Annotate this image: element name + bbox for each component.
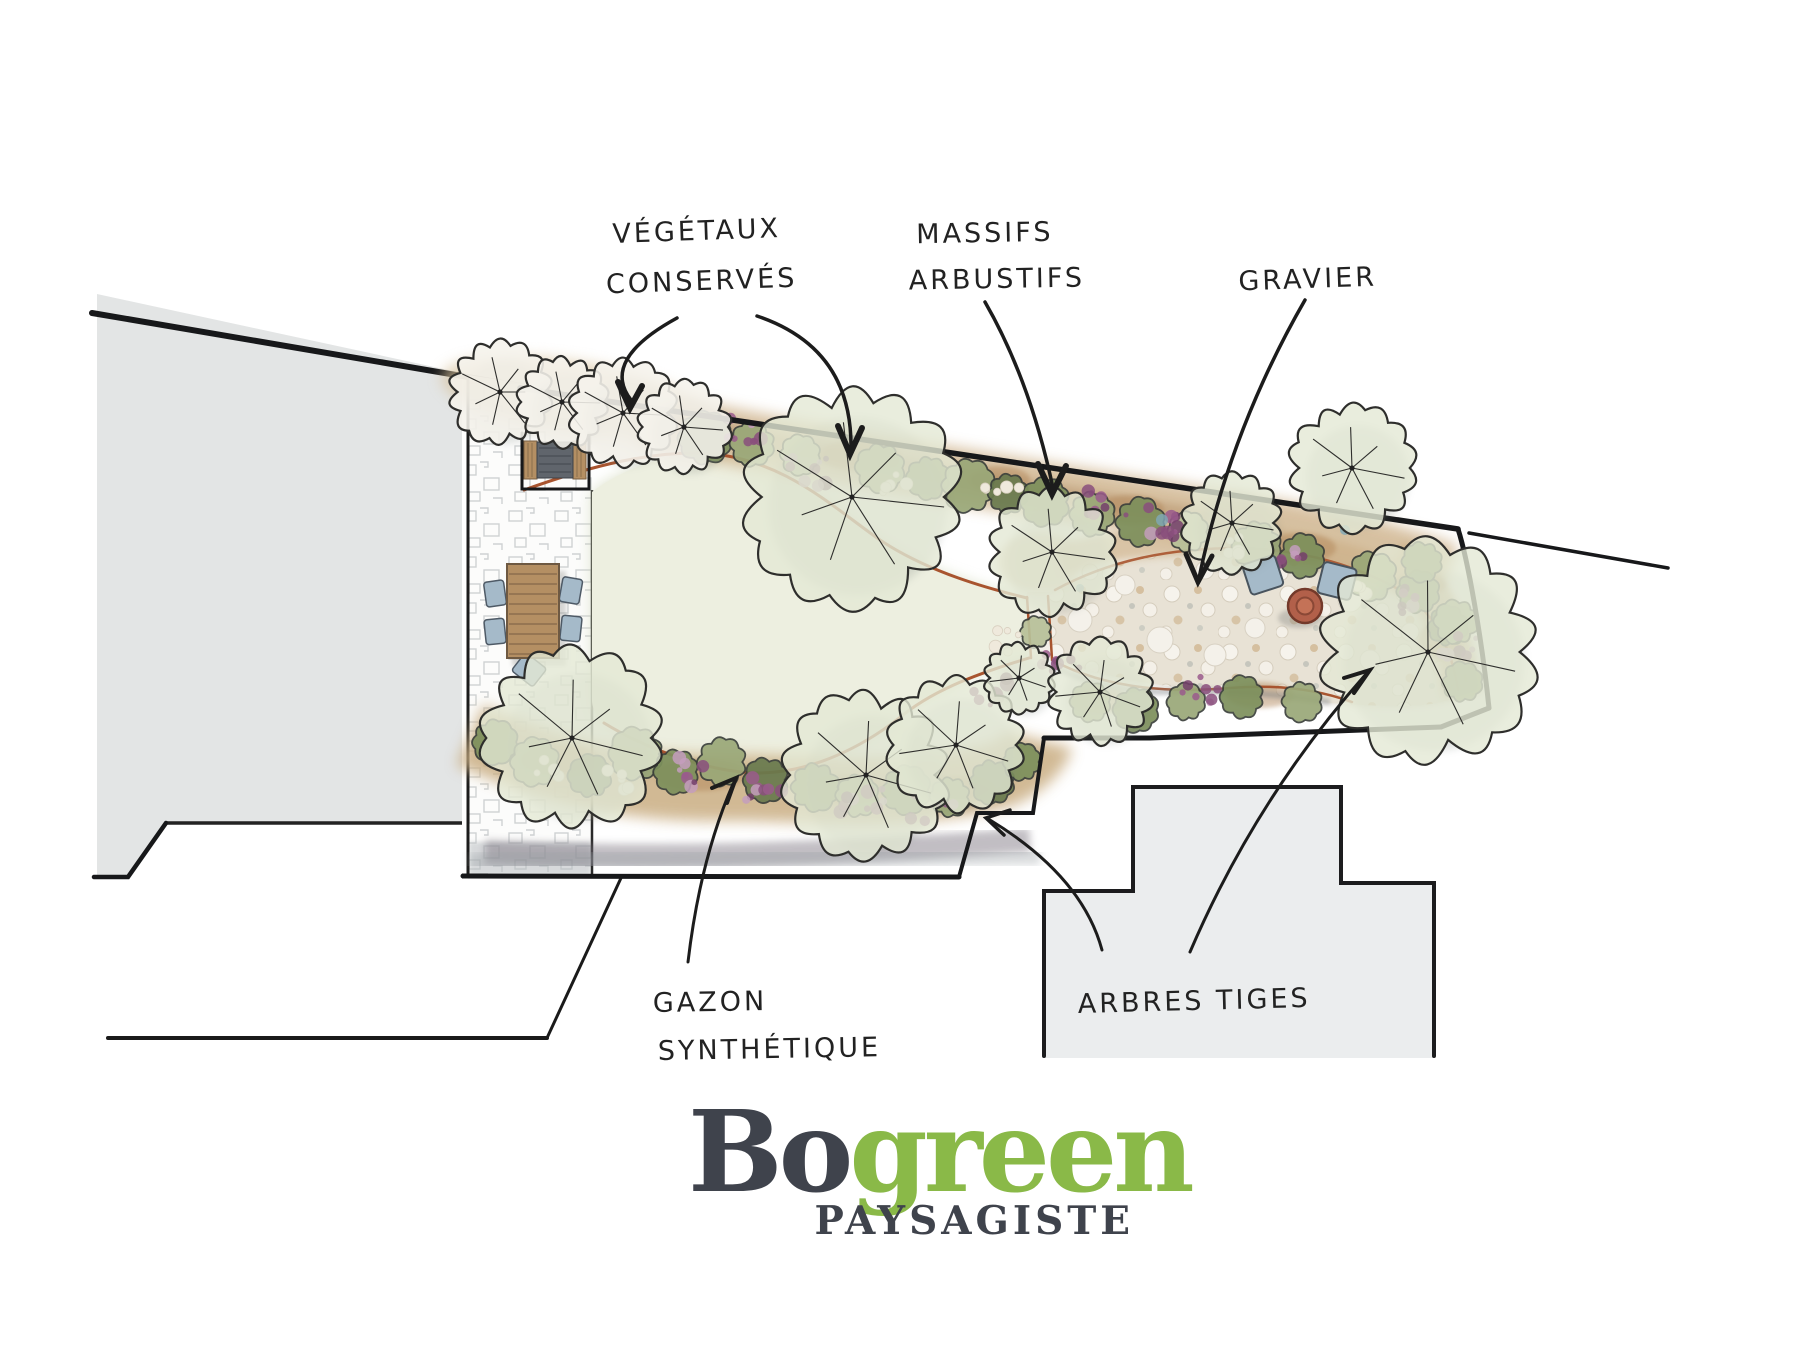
label-massifs-line1: MASSIFS bbox=[916, 217, 1054, 250]
label-gazon-line1: GAZON bbox=[653, 986, 768, 1019]
garden-plan-drawing: VÉGÉTAUX CONSERVÉS MASSIFS ARBUSTIFS GRA… bbox=[0, 0, 1800, 1350]
label-massifs-line2: ARBUSTIFS bbox=[908, 262, 1085, 296]
neighbor-boundary-lines bbox=[108, 878, 621, 1038]
label-vegetaux-line1: VÉGÉTAUX bbox=[612, 212, 782, 250]
label-arbres-tiges: ARBRES TIGES bbox=[1077, 983, 1311, 1020]
shrub-icon bbox=[1020, 616, 1051, 648]
garden-plan-svg: VÉGÉTAUX CONSERVÉS MASSIFS ARBUSTIFS GRA… bbox=[0, 0, 1800, 1350]
accent-dot bbox=[1156, 514, 1168, 526]
label-gazon-line2: SYNTHÉTIQUE bbox=[658, 1031, 882, 1067]
label-gravier: GRAVIER bbox=[1238, 262, 1378, 298]
label-vegetaux-line2: CONSERVÉS bbox=[605, 262, 797, 301]
shrub-icon bbox=[1220, 675, 1263, 719]
